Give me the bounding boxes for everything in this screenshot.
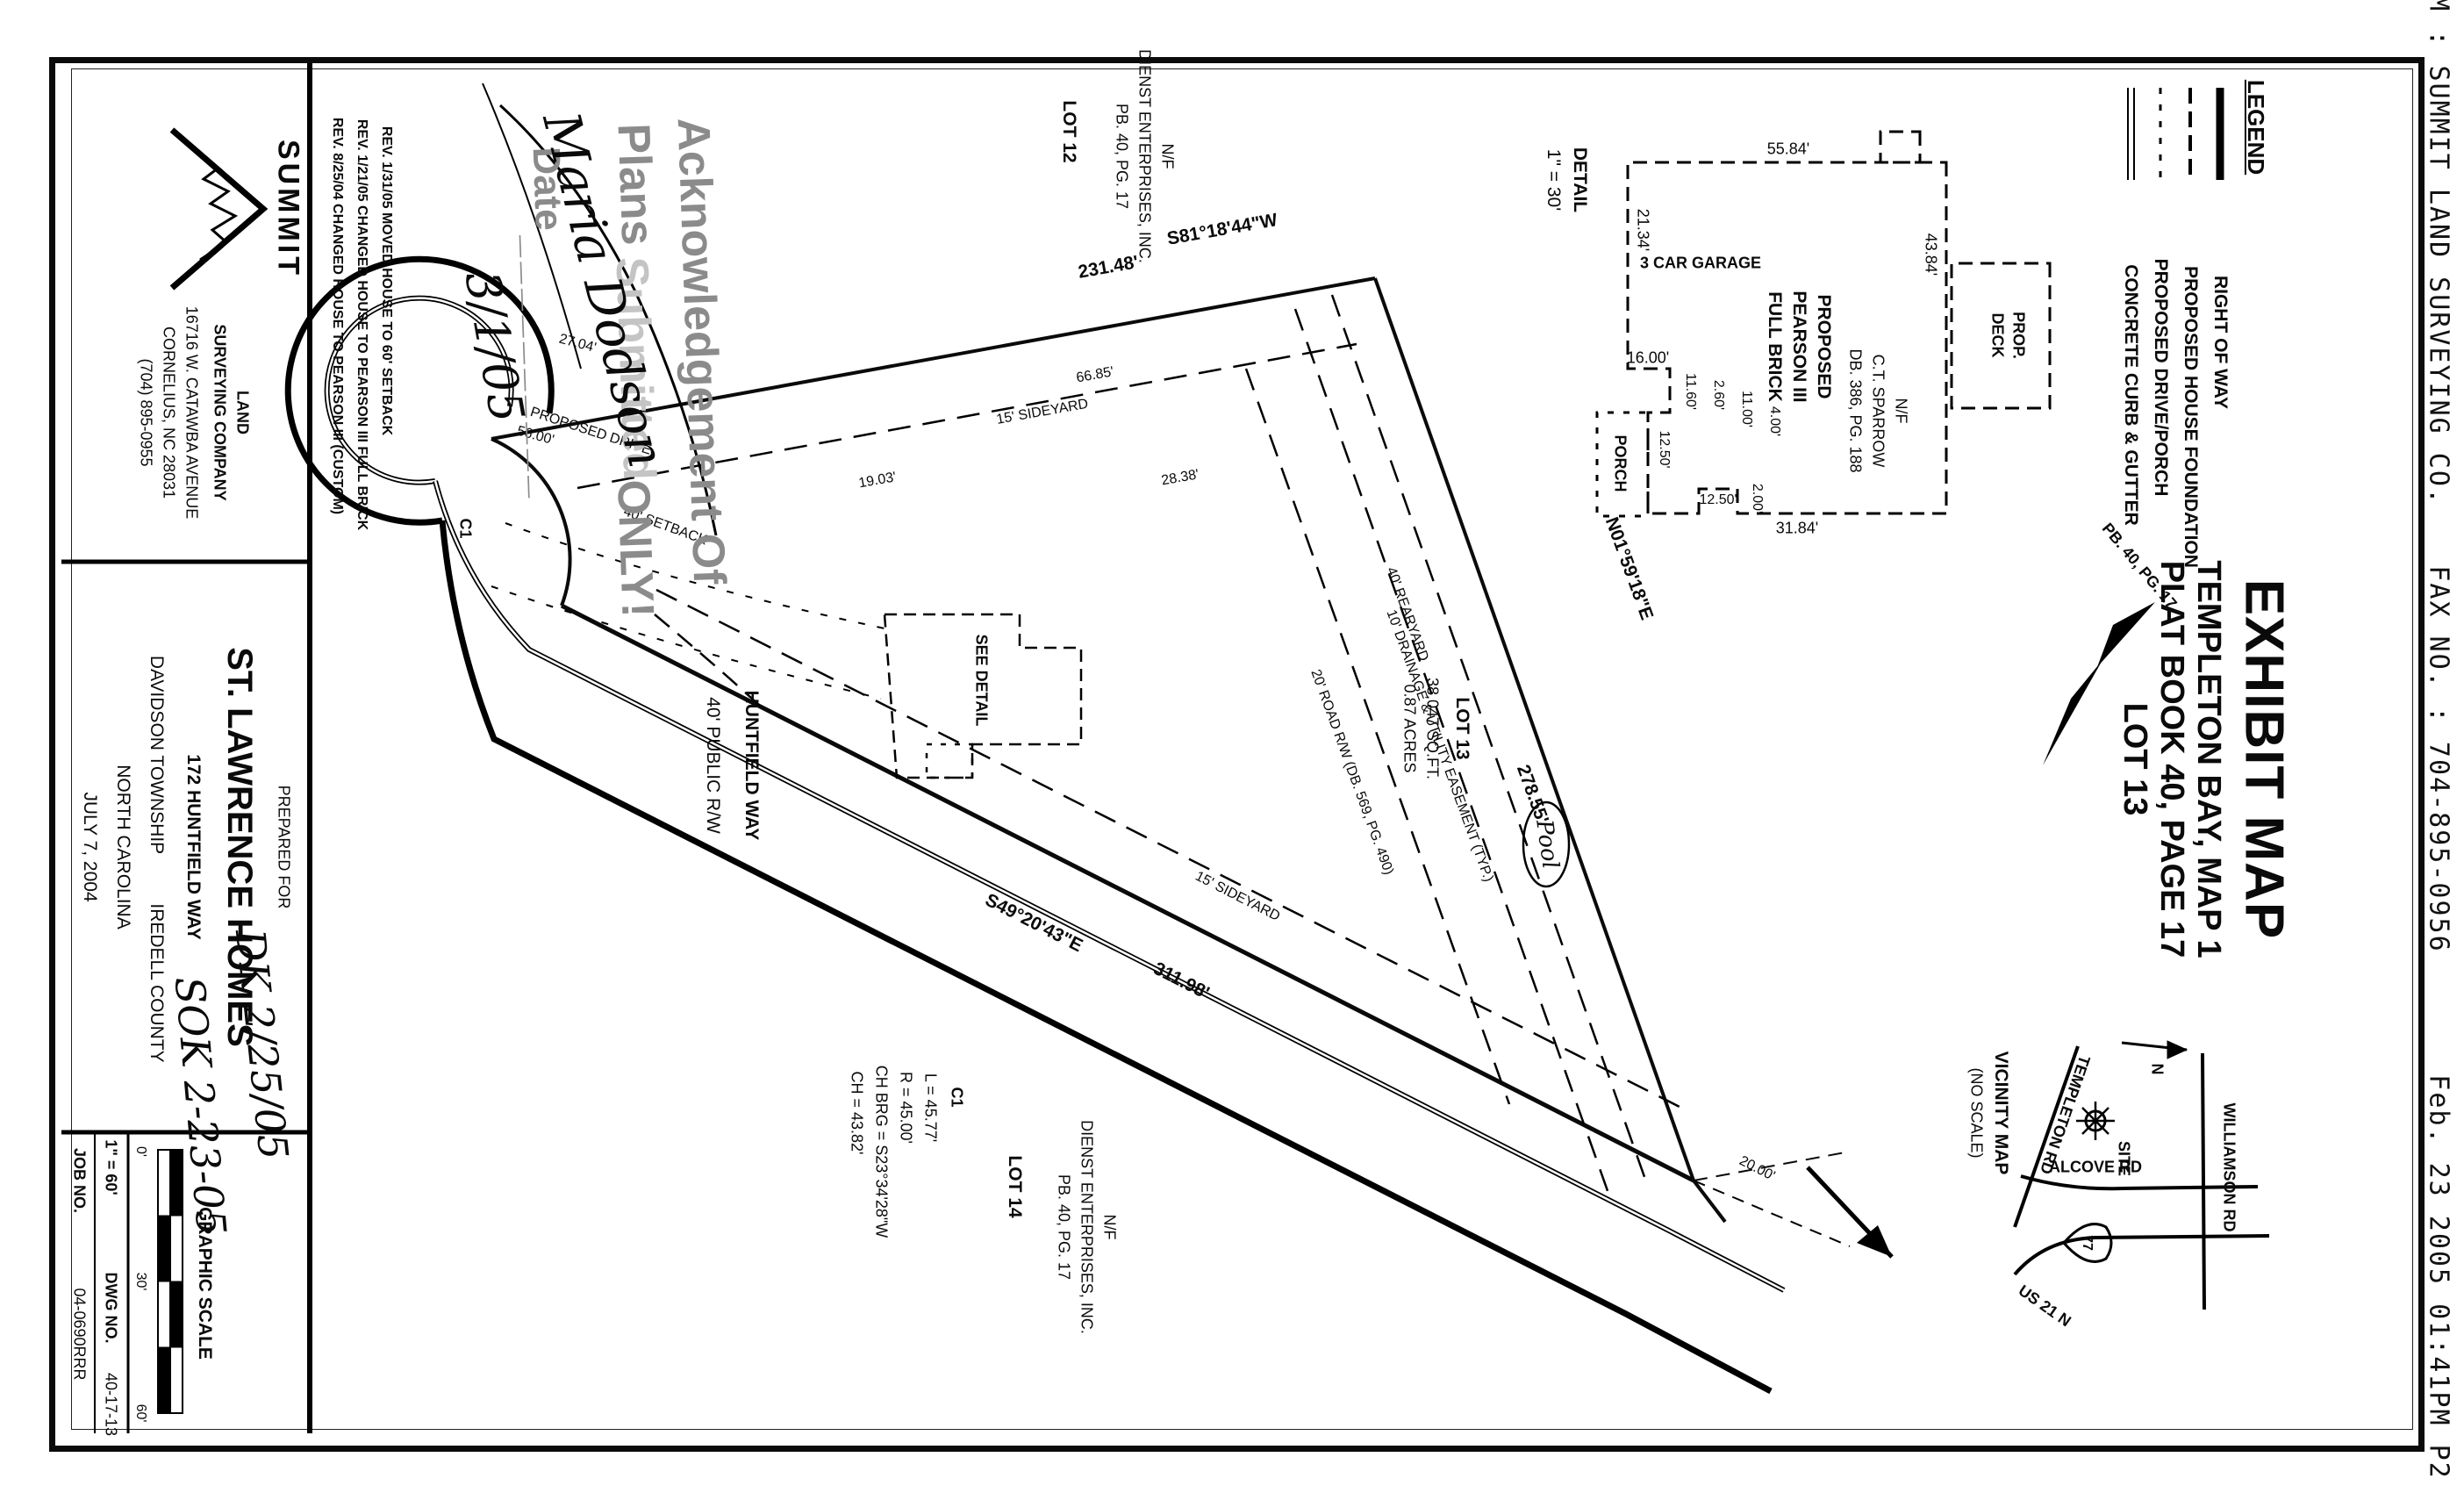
stamp-word-only: ONLY! — [605, 479, 663, 619]
county: IREDELL COUNTY — [146, 903, 167, 1062]
summit-logo-icon — [172, 130, 263, 288]
detail-house-line3: FULL BRICK — [1764, 291, 1785, 402]
revision-1: REV. 1/31/05 MOVED HOUSE TO 60' SETBACK — [378, 126, 394, 435]
dim-2-60: 2.60' — [1710, 380, 1726, 410]
dim-43-84: 43.84' — [1922, 233, 1940, 276]
detail-deck-line2: DECK — [1988, 312, 2007, 357]
plat-date: JULY 7, 2004 — [79, 792, 100, 901]
detail-house-line2: PEARSON III — [1788, 291, 1809, 402]
dim-21-34: 21.34' — [1634, 209, 1652, 251]
dwg-label: DWG NO. — [102, 1273, 120, 1344]
curve-chord-bearing: CH BRG = S23°34'28"W — [872, 1066, 891, 1238]
dim-16-00: 16.00' — [1627, 349, 1669, 368]
vicinity-77-shield: 77 — [2079, 1235, 2095, 1251]
lot12-nf: N/F — [1158, 144, 1177, 169]
road-rw-width: 40' PUBLIC R/W — [702, 697, 723, 834]
lot14-label: LOT 14 — [1004, 1155, 1025, 1217]
legend-title: LEGEND — [2242, 80, 2268, 175]
curve-id: C1 — [948, 1087, 966, 1107]
legend-item-right-of-way: RIGHT OF WAY — [2210, 276, 2231, 409]
revision-2: REV. 1/21/05 CHANGED HOUSE TO PEARSON II… — [354, 119, 369, 530]
scale-tick-60: 60' — [133, 1404, 148, 1423]
road-williamson: WILLIAMSON RD — [2220, 1103, 2238, 1232]
site-address: 172 HUNTFIELD WAY — [183, 754, 204, 940]
curve-tag-on-arc: C1 — [456, 518, 475, 538]
vicinity-noscale: (NO SCALE) — [1967, 1067, 1986, 1158]
legend-item-drive-porch: PROPOSED DRIVE/PORCH — [2150, 259, 2171, 497]
scale-bar — [158, 1150, 183, 1413]
scale-note: 1" = 60' — [102, 1139, 120, 1195]
scale-tick-30: 30' — [133, 1273, 148, 1291]
sparrow-ref: DB. 386, PG. 188 — [1846, 348, 1865, 472]
lot12-label: LOT 12 — [1058, 100, 1079, 162]
state: NORTH CAROLINA — [112, 764, 133, 929]
summit-wordmark: SUMMIT — [270, 140, 304, 278]
dim-12-50-porch: 12.50' — [1656, 430, 1672, 468]
detail-garage: 3 CAR GARAGE — [1640, 255, 1761, 273]
curve-radius: R = 45.00' — [897, 1072, 915, 1144]
sparrow-owner: C.T. SPARROW — [1869, 355, 1887, 468]
detail-scale: 1" = 30' — [1543, 149, 1564, 211]
dim-11-60: 11.60' — [1682, 373, 1698, 410]
title-platbook: PLAT BOOK 40, PAGE 17 — [2152, 561, 2190, 958]
detail-deck-line1: PROP. — [2009, 312, 2028, 359]
plat-document-page: FROM : SUMMIT LAND SURVEYING CO. FAX NO.… — [0, 0, 2464, 1493]
township: DAVIDSON TOWNSHIP — [146, 656, 167, 854]
pool-label: Pool — [1529, 818, 1562, 871]
lot14-ref: PB. 40, PG. 17 — [1055, 1174, 1073, 1280]
graphic-scale-title: GRAPHIC SCALE — [194, 1207, 215, 1360]
see-detail-label: SEE DETAIL — [972, 635, 991, 727]
dim-11-00: 11.00' — [1738, 391, 1754, 427]
vicinity-north-label: N — [2148, 1064, 2167, 1075]
lot14-owner: DIENST ENTERPRISES, INC. — [1078, 1120, 1096, 1334]
title-lot: LOT 13 — [2115, 703, 2153, 816]
job-value: 04-0690RRR — [70, 1288, 89, 1380]
curve-chord: CH = 43.82' — [848, 1072, 866, 1155]
title-subdivision: TEMPLETON BAY, MAP 1 — [2188, 560, 2227, 958]
company-phone: (704) 895-0955 — [137, 358, 155, 466]
legend-samples — [2128, 88, 2220, 180]
scale-tick-0: 0' — [133, 1146, 148, 1157]
company-line1: LAND — [233, 391, 252, 434]
detail-title: DETAIL — [1569, 147, 1590, 212]
lot12-owner: DIENST ENTERPRISES, INC. — [1135, 49, 1154, 263]
dim-12-50-right: 12.50' — [1699, 492, 1737, 508]
road-name: HUNTFIELD WAY — [741, 691, 762, 841]
dim-31-84: 31.84' — [1776, 520, 1818, 538]
legend-item-house-foundation: PROPOSED HOUSE FOUNDATION — [2180, 266, 2201, 568]
dim-2-00: 2.00' — [1749, 484, 1765, 513]
lot13-label: LOT 13 — [1451, 697, 1472, 759]
dim-55-84: 55.84' — [1767, 140, 1809, 159]
job-label: JOB NO. — [70, 1148, 89, 1213]
fax-scan-canvas: FROM : SUMMIT LAND SURVEYING CO. FAX NO.… — [0, 0, 2464, 1493]
revision-3: REV. 8/25/04 CHANGED HOUSE TO PEARSON II… — [329, 118, 345, 514]
vicinity-title: VICINITY MAP — [1990, 1052, 2011, 1175]
vicinity-site: SITE — [2115, 1141, 2133, 1176]
legend-item-curb-gutter: CONCRETE CURB & GUTTER — [2120, 264, 2141, 526]
client-name: ST. LAWRENCE HOMES — [219, 647, 260, 1047]
sparrow-nf: N/F — [1892, 398, 1910, 424]
prepared-for-label: PREPARED FOR — [275, 786, 293, 909]
company-address2: CORNELIUS, NC 28031 — [160, 327, 178, 499]
company-line2: SURVEYING COMPANY — [211, 324, 229, 500]
detail-house-line1: PROPOSED — [1813, 294, 1834, 398]
north-arrow-plat — [1808, 1167, 1892, 1257]
lot12-ref: PB. 40, PG. 17 — [1113, 104, 1131, 209]
detail-porch: PORCH — [1611, 434, 1630, 492]
curve-length: L = 45.77' — [921, 1073, 940, 1142]
lot14-nf: N/F — [1100, 1215, 1119, 1240]
dim-4-00: 4.00' — [1766, 406, 1782, 436]
company-address1: 16716 W. CATAWBA AVENUE — [183, 306, 201, 519]
dwg-value: 40-17-13 — [102, 1373, 120, 1436]
page-title: EXHIBIT MAP — [2232, 579, 2295, 940]
